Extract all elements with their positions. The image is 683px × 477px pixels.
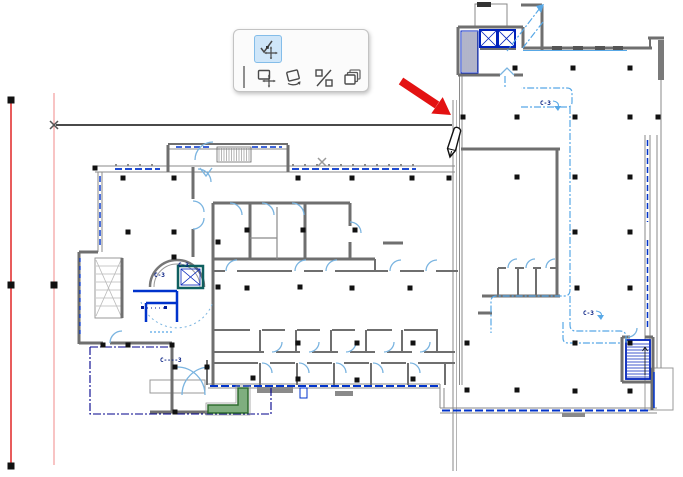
palette-button-multiply[interactable]: [339, 64, 367, 92]
route-label-top: C-3: [540, 100, 551, 107]
multiply-icon: [343, 68, 363, 88]
elevator-label: C-3: [178, 262, 189, 269]
escape-routes: [150, 8, 626, 343]
drag-move-icon: [257, 68, 277, 88]
pencil-cursor: [448, 127, 461, 157]
highlighted-walls: [133, 291, 177, 322]
route-label-lower: C-3: [583, 310, 594, 317]
red-arrow-annotation: [401, 81, 451, 115]
windows: [80, 140, 654, 411]
snap-x-marker: [318, 158, 326, 166]
mirror-icon: [314, 68, 334, 88]
zone-label: C----3: [160, 357, 182, 364]
check-move-icon: [258, 39, 278, 59]
reference-node-dots: [8, 97, 58, 470]
cad-drawing-canvas[interactable]: C-3 C-3 C-3 C-3 C----3: [0, 0, 683, 477]
planter-green: [206, 386, 250, 415]
ne-stair: [626, 340, 650, 379]
palette-button-drag[interactable]: [253, 64, 281, 92]
core-top: [461, 30, 515, 73]
stair-label: C-3: [154, 272, 165, 279]
pet-palette[interactable]: [233, 29, 369, 92]
rotate-icon: [284, 68, 304, 88]
palette-handle[interactable]: [243, 66, 245, 88]
palette-button-mirror[interactable]: [310, 64, 338, 92]
palette-button-rotate[interactable]: [280, 64, 308, 92]
reference-lines[interactable]: [8, 93, 457, 471]
building-plan: C-3 C-3 C-3 C-3 C----3: [79, 2, 673, 417]
palette-button-move-sub-element[interactable]: [254, 35, 282, 63]
